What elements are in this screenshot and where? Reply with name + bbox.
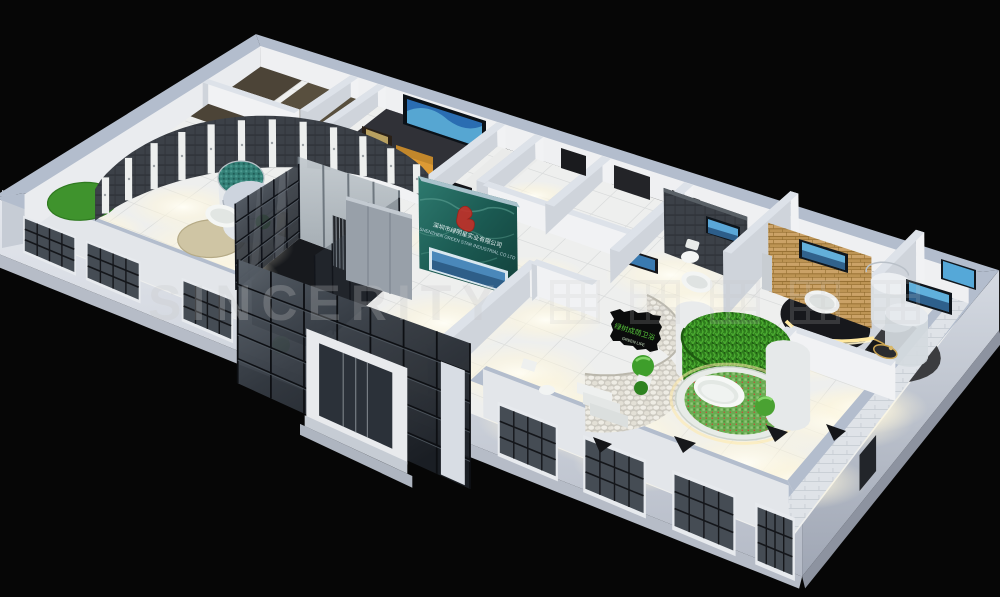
svg-text:SINCERITY: SINCERITY: [148, 275, 505, 331]
